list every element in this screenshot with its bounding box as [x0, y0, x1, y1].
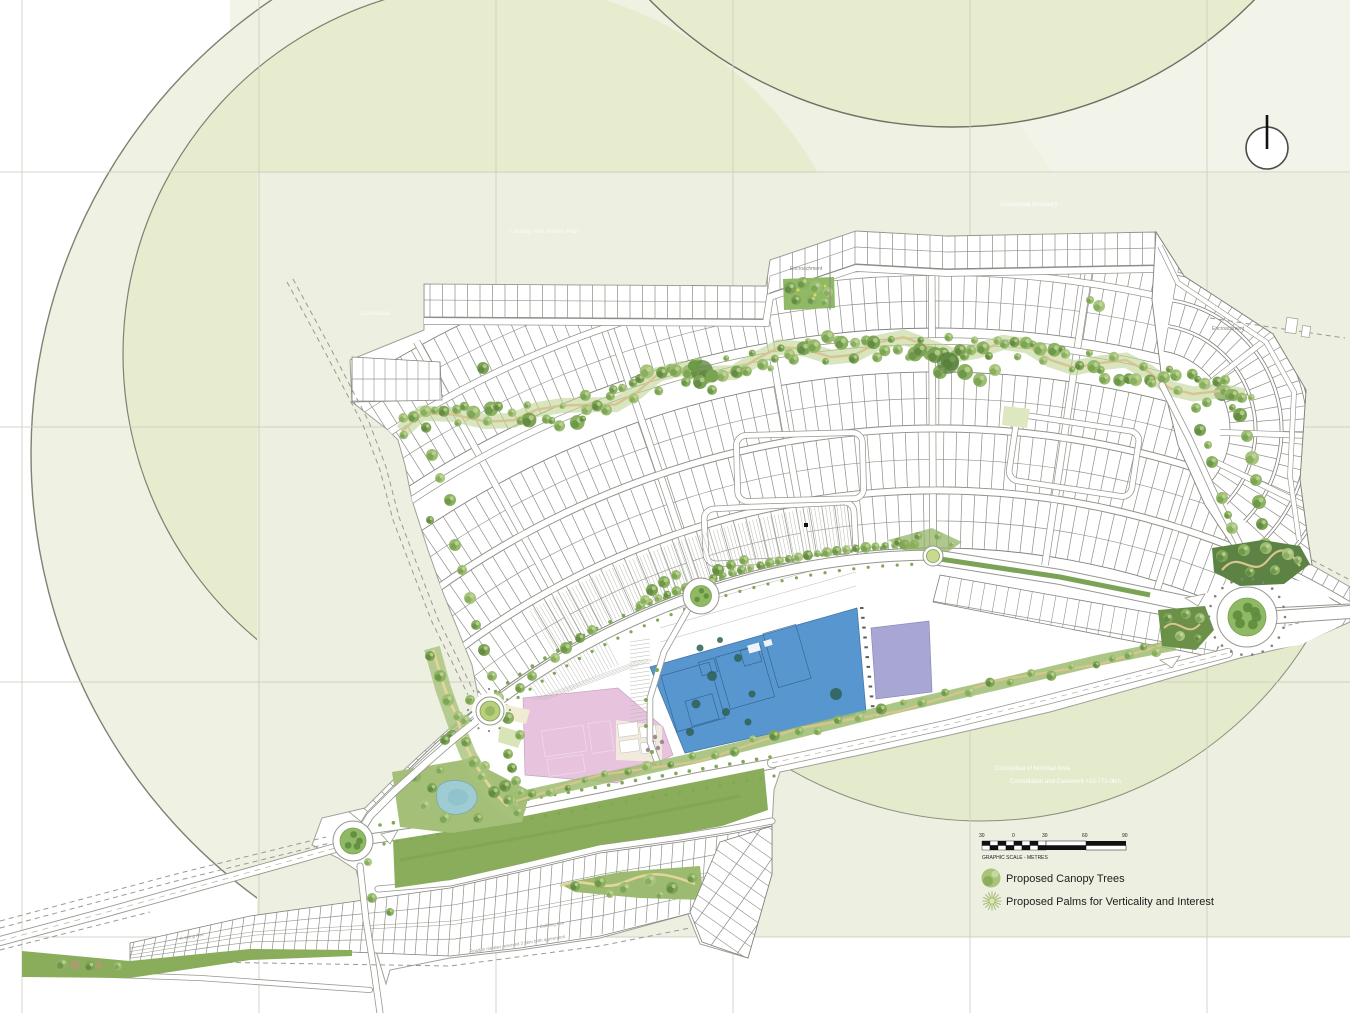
svg-text:Encroachment: Encroachment: [1212, 326, 1245, 332]
svg-text:Conceptual: Conceptual: [360, 311, 390, 317]
svg-text:Proposed Canopy Trees: Proposed Canopy Trees: [1006, 873, 1125, 885]
svg-text:60: 60: [1082, 833, 1088, 839]
svg-text:Conceptual Boundary: Conceptual Boundary: [1000, 202, 1058, 208]
svg-text:Consultation and Easement +10-: Consultation and Easement +10-771-0km: [1010, 779, 1121, 785]
svg-text:90: 90: [1122, 833, 1128, 839]
svg-text:GRAPHIC SCALE - METRES: GRAPHIC SCALE - METRES: [982, 855, 1049, 861]
svg-text:Proposed Palms for Verticality: Proposed Palms for Verticality and Inter…: [1006, 896, 1214, 908]
svg-text:30: 30: [1042, 833, 1048, 839]
svg-text:Conceptual of Nominal Area: Conceptual of Nominal Area: [995, 766, 1070, 772]
svg-text:30: 30: [979, 833, 985, 839]
svg-text:0: 0: [1012, 833, 1015, 839]
svg-text:Encroachment: Encroachment: [790, 266, 823, 272]
svg-text:Canopy Park Master Plan: Canopy Park Master Plan: [510, 229, 578, 235]
